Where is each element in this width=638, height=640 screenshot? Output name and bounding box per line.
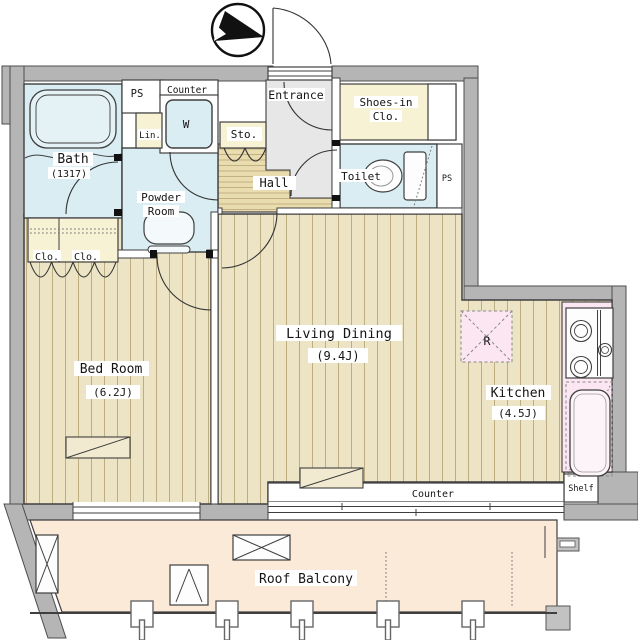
entrance-label: Entrance: [268, 88, 323, 102]
closet-right-label: Clo.: [74, 252, 98, 263]
powder-room-label-1: Powder: [141, 191, 181, 204]
balcony-unit-symbol: [36, 535, 58, 593]
bedroom-window: [73, 502, 200, 518]
living-dining-size-label: (9.4J): [316, 349, 359, 363]
linen-label: Lin.: [139, 131, 161, 141]
laundry-counter-label: Counter: [167, 85, 207, 96]
shelf-label: Shelf: [568, 484, 594, 494]
floor-plan-page: Bath (1317) Powder Room PS Counter W Lin…: [0, 0, 638, 640]
ps-top-label: PS: [131, 88, 144, 100]
powder-room-label-2: Room: [148, 205, 175, 218]
kitchen-size-label: (4.5J): [498, 407, 538, 420]
balcony-hatch-symbol: [170, 565, 208, 605]
hall-label: Hall: [260, 176, 289, 190]
stove-icon: [566, 308, 613, 378]
bath-label: Bath: [57, 152, 88, 167]
living-table: [300, 468, 363, 488]
north-arrow-icon: [212, 4, 264, 56]
sink-icon: [566, 382, 612, 476]
windows: [73, 502, 564, 518]
toilet-label: Toilet: [341, 170, 381, 183]
balcony-label: Roof Balcony: [259, 572, 353, 587]
living-dining-label: Living Dining: [286, 326, 392, 342]
storage-label: Sto.: [231, 128, 258, 141]
bedroom-label: Bed Room: [80, 362, 143, 377]
bathtub-icon: [30, 90, 116, 148]
living-window: [268, 502, 564, 518]
shoes-closet-label-2: Clo.: [373, 110, 400, 123]
balcony-box-symbol: [233, 535, 290, 560]
entrance-threshold: [268, 67, 332, 80]
balcony-floor: [30, 520, 557, 612]
closet-left-label: Clo.: [35, 252, 59, 263]
bedroom-size-label: (6.2J): [93, 386, 133, 399]
ld-counter-label: Counter: [412, 489, 454, 500]
fridge-label: R: [484, 334, 491, 348]
shoes-closet-label-1: Shoes-in: [360, 96, 413, 109]
bath-size-label: (1317): [51, 169, 87, 180]
ps-side-label: PS: [442, 174, 452, 184]
bedroom-table: [66, 437, 130, 458]
shoes-closet-side: [428, 84, 456, 140]
balcony-corner-block: [546, 606, 570, 630]
kitchen-label: Kitchen: [491, 386, 546, 401]
washer-label: W: [183, 118, 190, 131]
floor-plan-canvas: Bath (1317) Powder Room PS Counter W Lin…: [0, 0, 638, 640]
